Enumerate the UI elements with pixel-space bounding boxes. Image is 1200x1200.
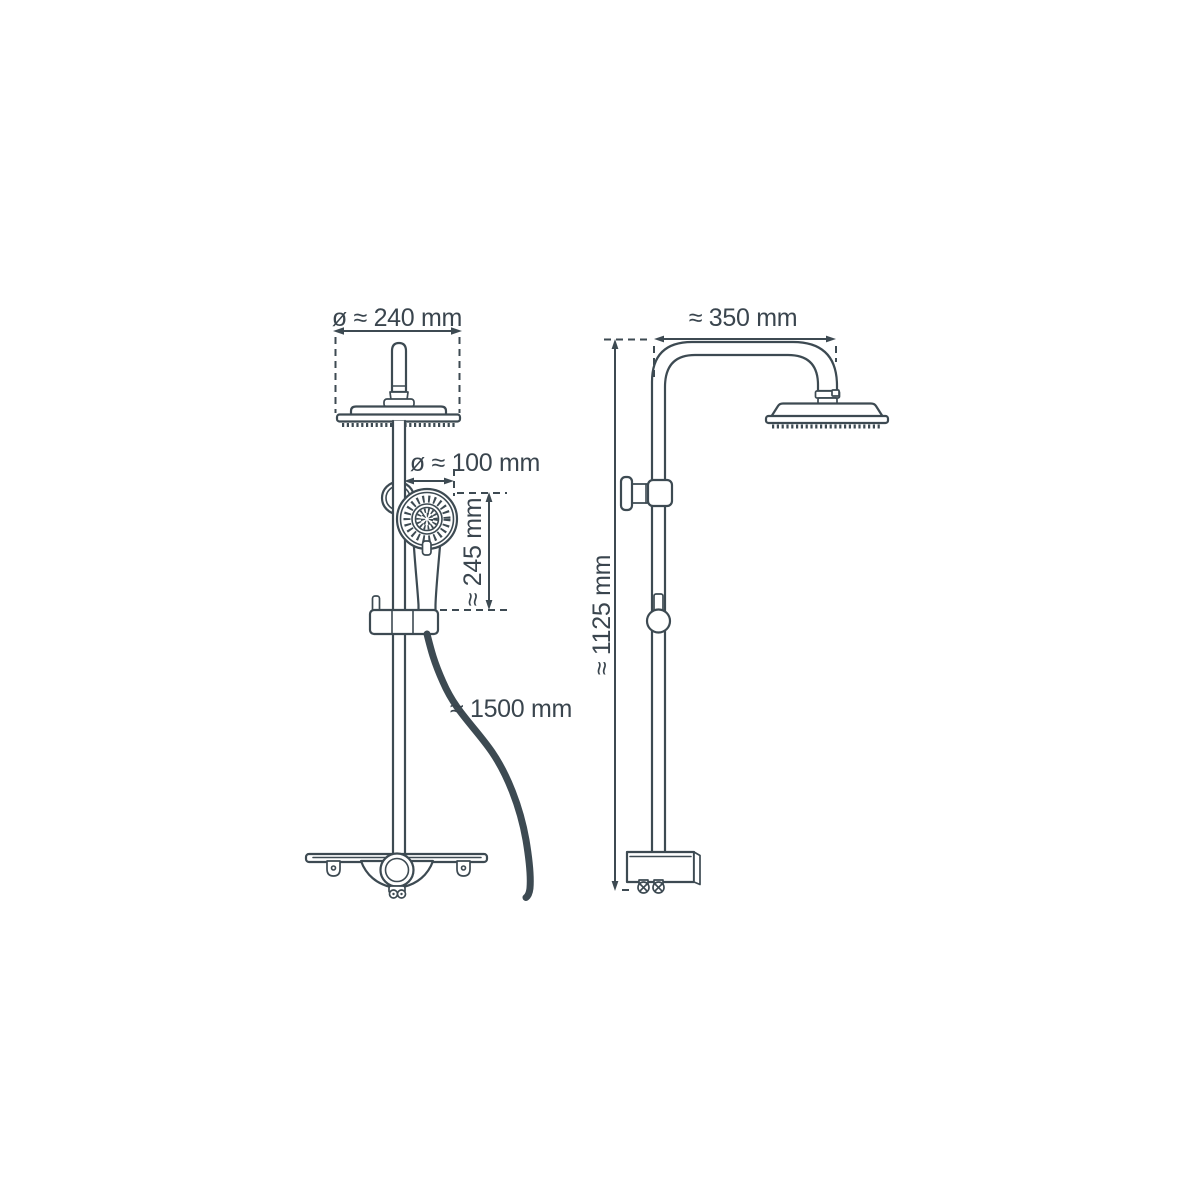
dimension-hose-length: ≈ 1500 mm [450,695,572,723]
mixer-housing [627,852,700,893]
shelf-front [306,854,487,899]
arrowhead-right [826,336,836,343]
dimension-hand-shower-length-label: ≈ 245 mm [459,498,487,607]
dimension-overhead-diameter-label: ø ≈ 240 mm [332,304,462,332]
arrowhead-right [444,478,454,485]
front-view: ø ≈ 240 mm ø ≈ 100 mm ≈ 245 mm ≈ 150 [306,304,572,898]
technical-drawing-canvas: ø ≈ 240 mm ø ≈ 100 mm ≈ 245 mm ≈ 150 [0,0,1200,1200]
column-pipe-front [393,421,405,855]
shelf-foot-left [327,861,340,876]
shower-dimension-diagram: ø ≈ 240 mm ø ≈ 100 mm ≈ 245 mm ≈ 150 [0,0,1200,1200]
shelf-foot-right [457,861,470,876]
dimension-arm-reach-label: ≈ 350 mm [689,304,798,332]
arrowhead-left [654,336,664,343]
dimension-hand-shower-diameter-label: ø ≈ 100 mm [410,449,540,477]
overhead-shower-head-side [766,404,888,427]
wall-bracket-flange [621,477,632,510]
wall-bracket [621,477,672,510]
dimension-arm-reach: ≈ 350 mm [654,304,836,377]
wall-bracket-collar [648,480,672,506]
overhead-pipe-front [384,343,414,407]
dimension-hose-length-label: ≈ 1500 mm [450,695,572,723]
dimension-column-height-label: ≈ 1125 mm [588,555,616,675]
arrowhead-down [612,881,619,891]
spray-selector-tab [423,541,432,555]
slider-knob-side [647,594,670,633]
side-view: ≈ 350 mm ≈ 1125 mm [588,304,888,893]
connection-nut-right [653,880,664,893]
dimension-column-height: ≈ 1125 mm [588,339,650,891]
connection-nut-left [638,880,649,893]
